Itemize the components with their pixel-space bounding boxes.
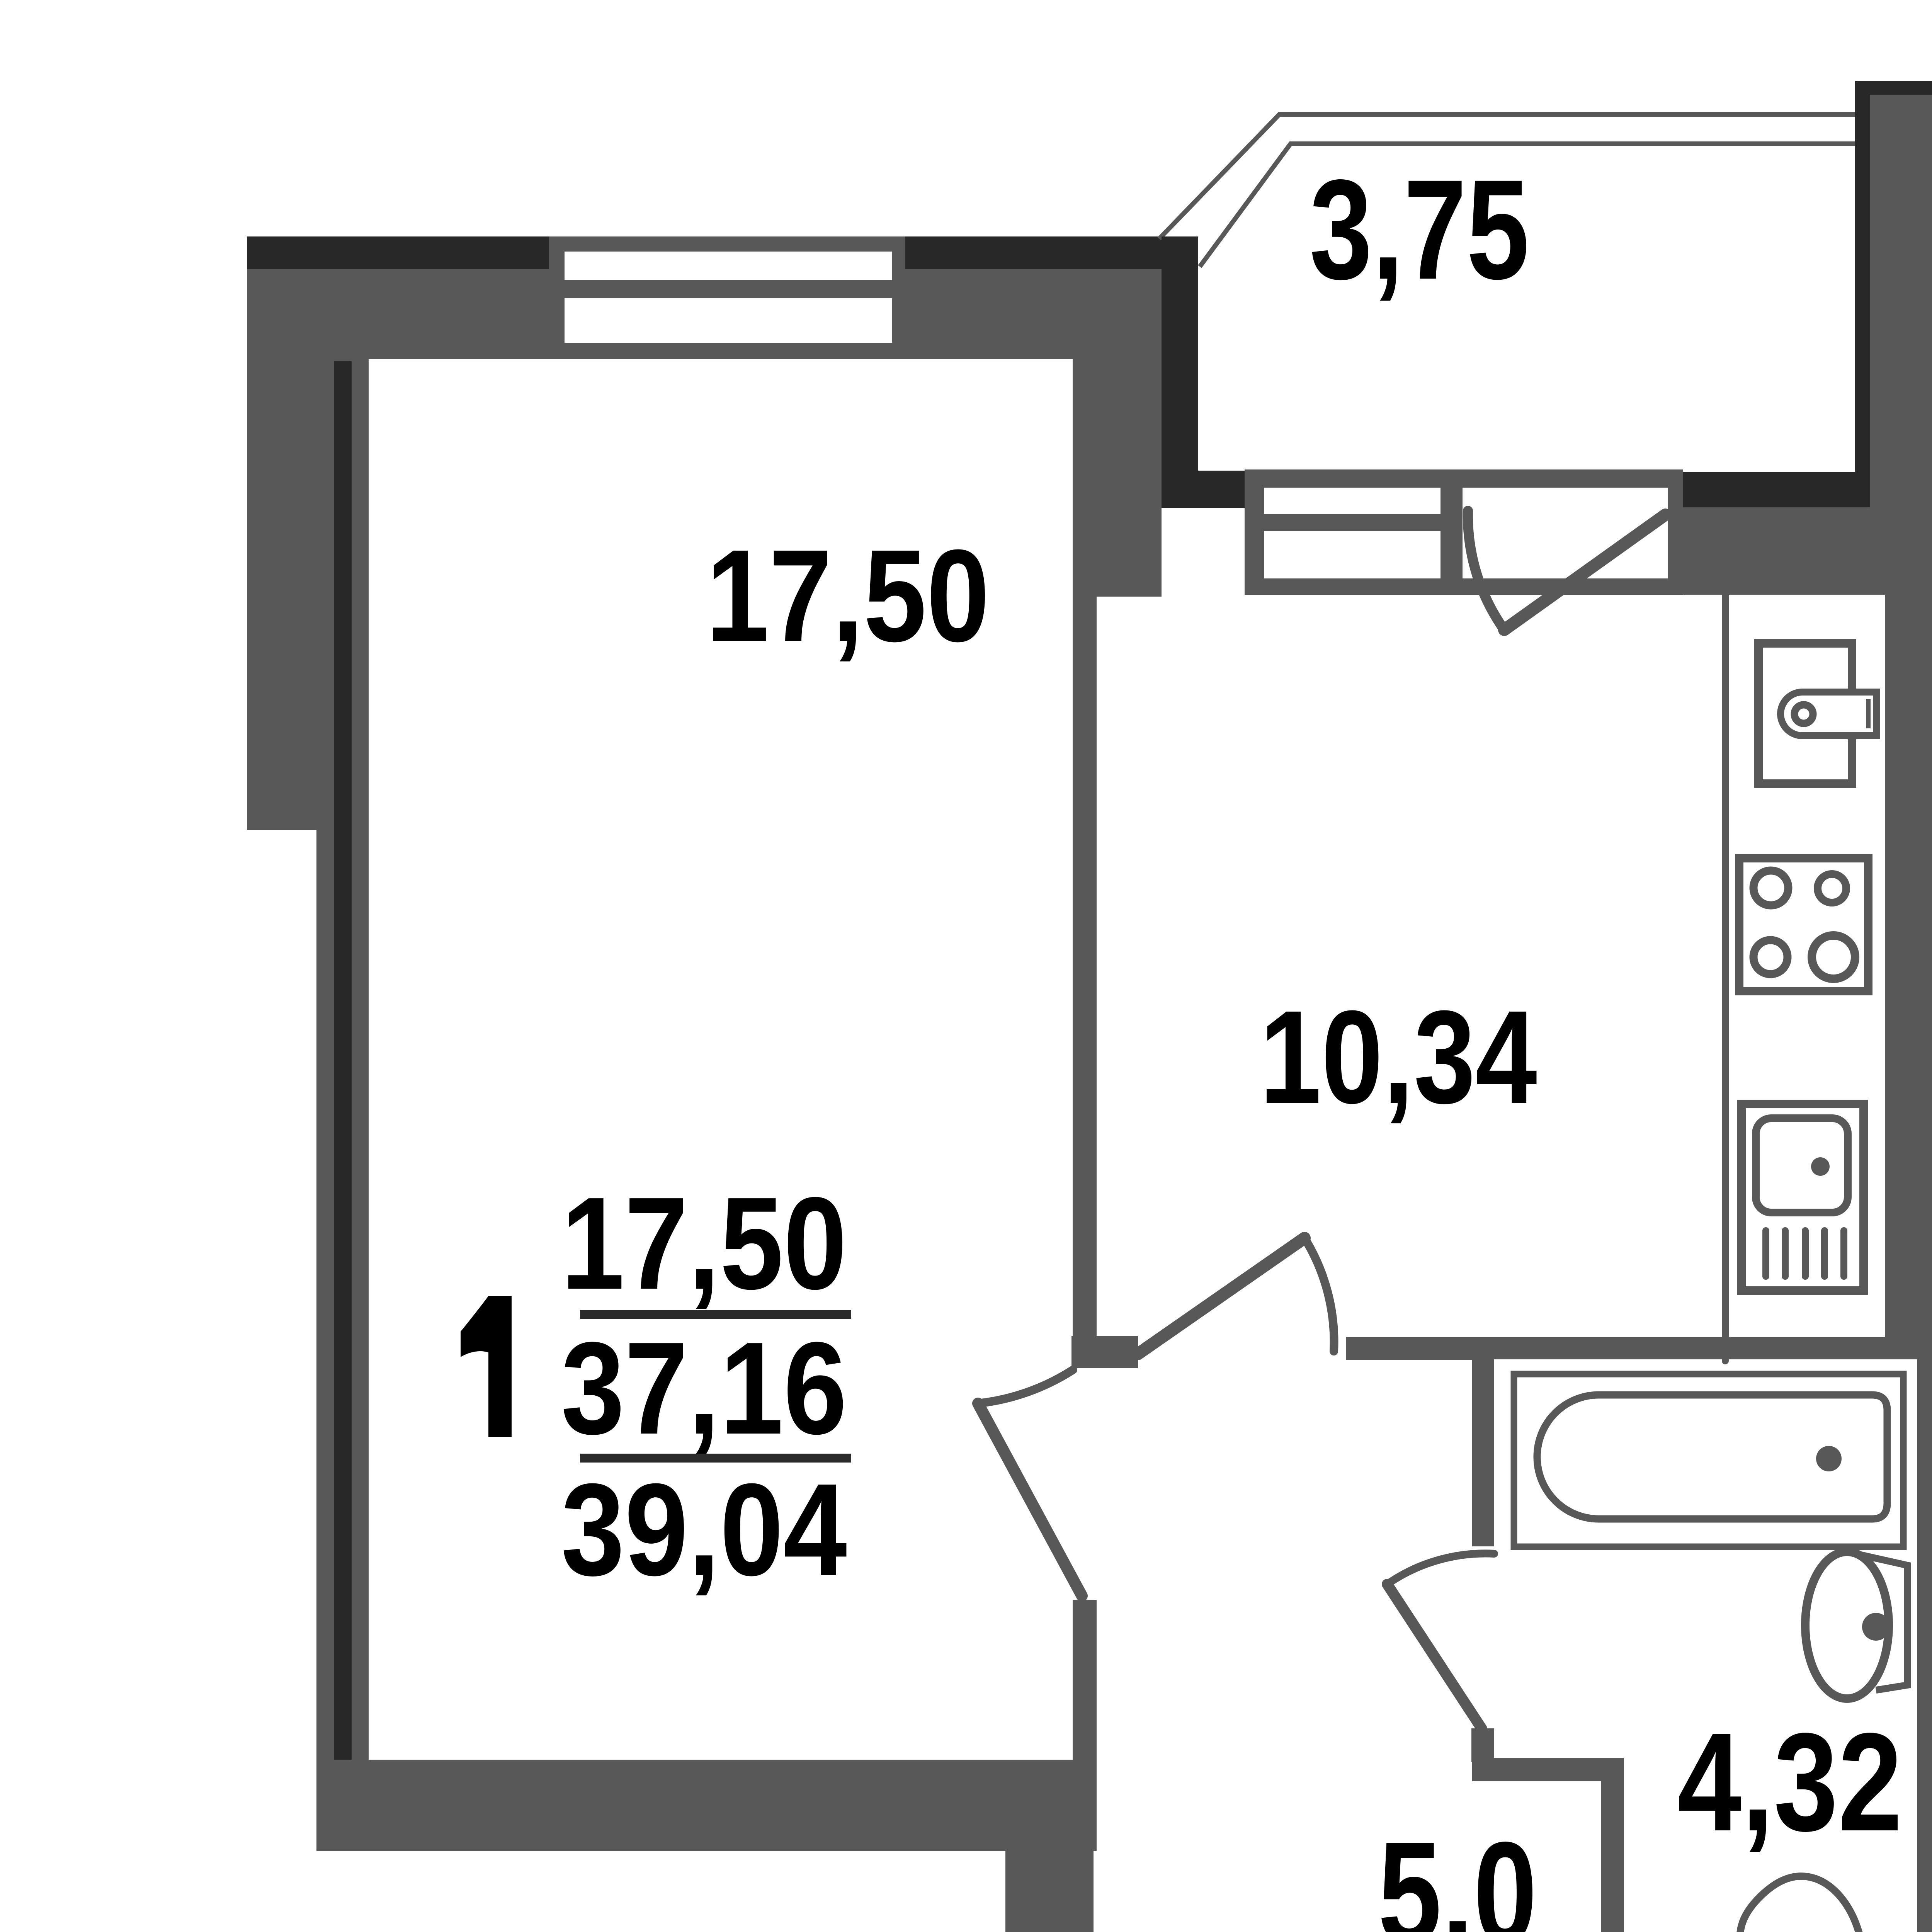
svg-text:4,32: 4,32 (1677, 1704, 1902, 1860)
svg-text:3,75: 3,75 (1310, 150, 1529, 309)
svg-text:17,50: 17,50 (561, 1170, 847, 1317)
svg-text:10,34: 10,34 (1260, 983, 1538, 1131)
svg-text:39,04: 39,04 (561, 1456, 848, 1603)
svg-text:37,16: 37,16 (561, 1315, 847, 1462)
svg-text:17,50: 17,50 (706, 522, 990, 669)
svg-text:5,0: 5,0 (1378, 1812, 1537, 1932)
